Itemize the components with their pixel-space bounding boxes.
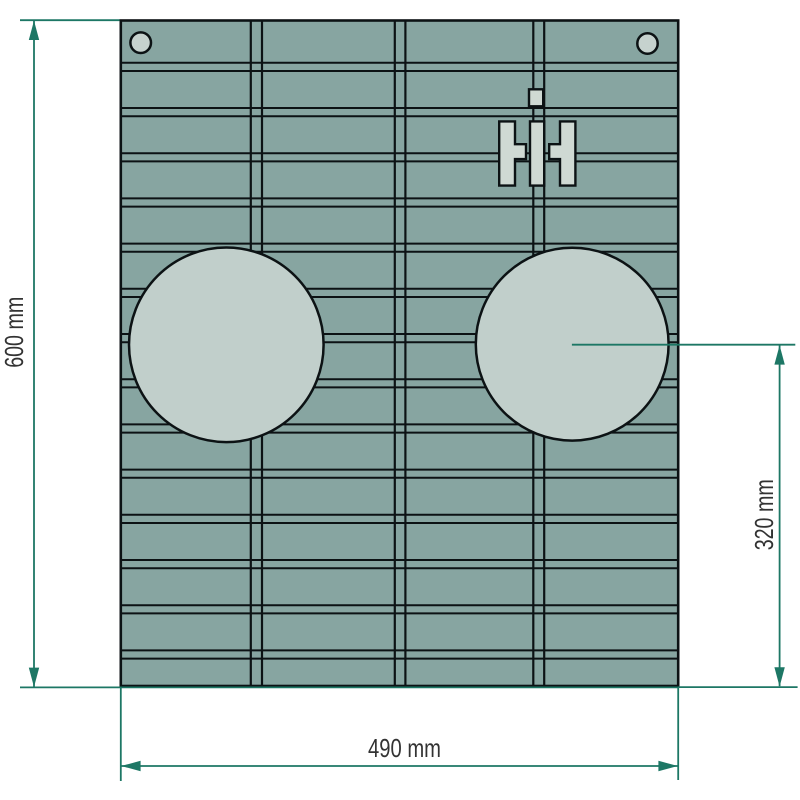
svg-text:600 mm: 600 mm [0,297,29,368]
svg-text:490 mm: 490 mm [368,733,441,763]
svg-text:320 mm: 320 mm [749,479,779,550]
